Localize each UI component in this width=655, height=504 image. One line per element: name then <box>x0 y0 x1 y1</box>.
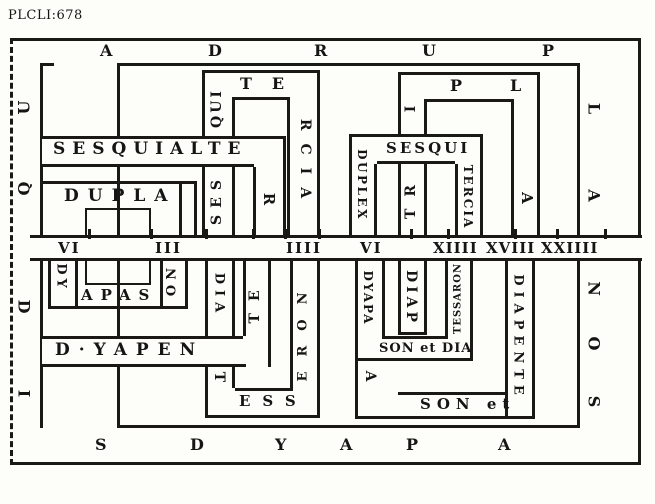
number-value: VI <box>360 239 383 257</box>
dyapason-bottom-label: APAS <box>81 286 157 304</box>
dupla-leg-outer <box>194 184 197 236</box>
dyapente-leg-outer <box>268 260 271 367</box>
tripla-right-leg-label: A <box>518 190 536 206</box>
diatesseron-bottom-outer <box>205 415 320 418</box>
dyapente-band-label: D·YAPEN <box>55 340 204 360</box>
diap-dia-left-wall-ext <box>355 360 358 419</box>
diapente-column-label: DIAPENTE <box>511 262 526 414</box>
ring-letter: A <box>498 435 510 454</box>
dyapason-right-leg-inner <box>160 260 163 306</box>
left-inner-wall-hook <box>40 63 54 66</box>
tick-mark <box>514 229 517 239</box>
dyap-diat-right-leg-label: TESSARON <box>453 261 464 337</box>
duplex-left-leg-outer <box>349 137 352 236</box>
dyap-diat-bottom-label: SON et DIA <box>379 341 472 356</box>
diapente-column-right <box>532 260 535 419</box>
ring-letter: R <box>314 41 327 60</box>
sesquialtera-leg-label: R <box>260 184 278 214</box>
tick-mark <box>447 229 450 239</box>
tercia-leg-label: TERCIA <box>461 160 475 234</box>
dyap-diat-bottom-outer <box>355 358 473 361</box>
sesquitercia-leg-lower-label: SES <box>209 171 225 227</box>
dyap-diat-left-outer <box>355 260 358 360</box>
tick-mark <box>318 229 321 239</box>
sesquialtera-leg-outer <box>283 139 286 236</box>
tick-mark <box>284 229 287 239</box>
dyapente-leg-label: TE <box>247 273 263 329</box>
ring-letter: P <box>406 435 418 454</box>
dyapente-band-top <box>42 336 243 339</box>
diap-dia-band-bottom <box>355 416 535 419</box>
dyapason-right-leg-label: ON <box>165 260 180 300</box>
sesquitercia-top-label: TE <box>240 74 304 93</box>
diap-column-right <box>424 260 427 335</box>
duplex-band-bottom <box>377 161 455 164</box>
dyap-diat-left-leg-label: DYAPA <box>361 262 375 334</box>
sesquitercia-right-leg-label: RCIA <box>297 105 313 225</box>
diap-dia-bottom-label: SON et <box>420 395 515 413</box>
page-label: PLCLI:678 <box>8 8 83 23</box>
duplex-leg-label: DUPLEX <box>355 139 369 231</box>
diatesseron-right-leg-inner <box>290 260 293 391</box>
tercia-right-leg-outer <box>480 137 483 236</box>
diapente-column-left <box>505 260 508 419</box>
tone-bracket-upper <box>85 208 151 236</box>
ring-letter: A <box>100 41 112 60</box>
woodcut-interval-diagram: PLCLI:678 A D R U P U Q D I L A N O S S … <box>0 0 655 504</box>
diap-column-left <box>398 260 401 335</box>
sesquialtera-band-bottom <box>42 164 254 167</box>
tick-mark <box>252 229 255 239</box>
ring-letter: L <box>585 100 604 118</box>
dyapason-bottom-line <box>48 306 188 309</box>
tone-bracket-lower <box>85 260 151 285</box>
tripla-top-label: PL <box>450 76 569 95</box>
ring-letter: S <box>585 393 604 411</box>
number-value: XIIII <box>433 239 478 257</box>
tripla-leg-upper-label: I <box>403 101 419 117</box>
number-value: III <box>155 239 182 257</box>
diatesseron-bend-label: T <box>211 368 227 386</box>
diap-dia-left-lower-label: A <box>362 368 378 384</box>
sesquialtera-leg-inner <box>253 167 256 236</box>
dyap-diat-left-inner <box>382 260 385 338</box>
dyap-diat-bottom-inner <box>382 336 448 339</box>
ring-letter: Q <box>15 180 34 198</box>
dyapason-left-leg-inner <box>75 260 78 308</box>
ring-letter: U <box>15 99 34 117</box>
tercia-right-leg-inner <box>455 164 458 236</box>
number-value: IIII <box>286 239 322 257</box>
dyapason-right-leg-outer <box>185 260 188 306</box>
dupla-top-line <box>40 181 197 184</box>
number-value: XXIIII <box>541 239 598 257</box>
ring-letter: N <box>585 280 604 298</box>
dyap-diat-right-inner <box>445 260 448 338</box>
dyapente-band-bottom <box>42 364 246 367</box>
sesquitercia-leg-upper-label: QUI <box>209 86 225 130</box>
dupla-label: DUPLA <box>64 186 177 206</box>
diatesseron-left-leg-inner <box>232 260 235 388</box>
dupla-leg-inner <box>179 184 182 236</box>
number-value: XVIII <box>486 239 535 257</box>
dyapason-left-leg-label: DY <box>54 260 69 296</box>
tick-mark <box>88 229 91 239</box>
dyapente-leg-inner <box>243 260 246 336</box>
dyapason-left-leg-outer <box>48 260 51 308</box>
ring-letter: A <box>585 187 604 205</box>
tick-mark <box>205 229 208 239</box>
tripla-leg-lower-label: TR <box>403 172 419 220</box>
ring-letter: O <box>585 335 604 353</box>
ring-letter: D <box>15 298 34 316</box>
ring-letter: D <box>190 435 204 454</box>
ring-letter: I <box>15 385 34 403</box>
tick-mark <box>556 229 559 239</box>
tick-mark <box>410 229 413 239</box>
tick-mark <box>150 229 153 239</box>
diatesseron-bottom-inner <box>235 388 293 391</box>
sesqui-band-label: SESQUI <box>386 139 470 157</box>
ring-letter: Y <box>275 435 286 454</box>
diatesseron-bottom-label: ESS <box>239 392 308 410</box>
ring-letter: A <box>340 435 352 454</box>
diatesseron-right-leg-label: ERON <box>296 266 311 394</box>
sesquialtera-band-label: SESQUIALTE <box>53 139 247 159</box>
number-value: VI <box>58 239 81 257</box>
ring-letter: S <box>95 435 107 454</box>
ring-letter: P <box>542 41 554 60</box>
ring-letter: D <box>208 41 222 60</box>
diap-column-cap <box>398 332 427 335</box>
ring-letter: U <box>422 41 436 60</box>
diap-column-label: DIAP <box>403 267 419 329</box>
duplex-left-leg-inner <box>374 164 377 236</box>
diatesseron-right-leg-outer <box>317 260 320 418</box>
tick-mark <box>604 229 607 239</box>
diatesseron-left-leg-label: DIA <box>212 264 227 328</box>
